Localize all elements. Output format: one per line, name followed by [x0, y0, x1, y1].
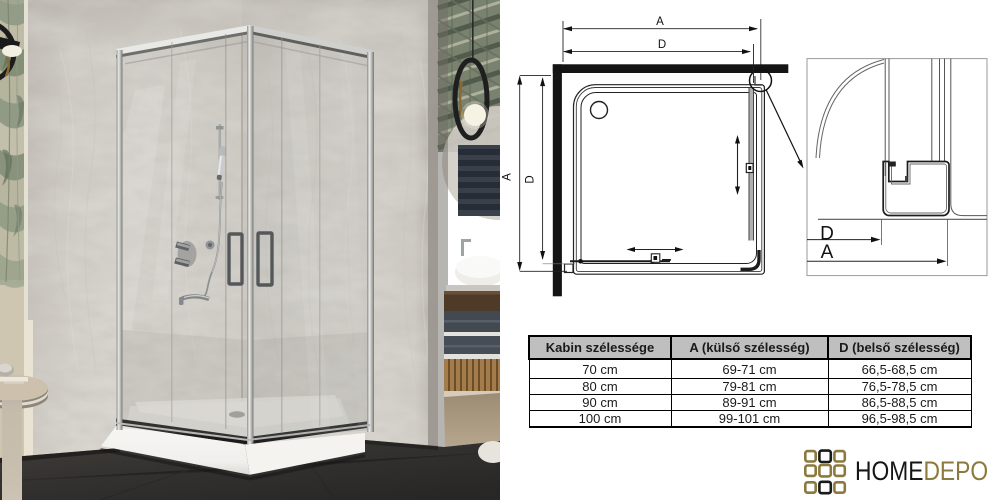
svg-text:D: D	[525, 175, 537, 183]
svg-text:A: A	[821, 242, 834, 263]
svg-text:A: A	[656, 16, 664, 28]
svg-text:A: A	[502, 173, 514, 181]
svg-text:D: D	[658, 39, 666, 51]
